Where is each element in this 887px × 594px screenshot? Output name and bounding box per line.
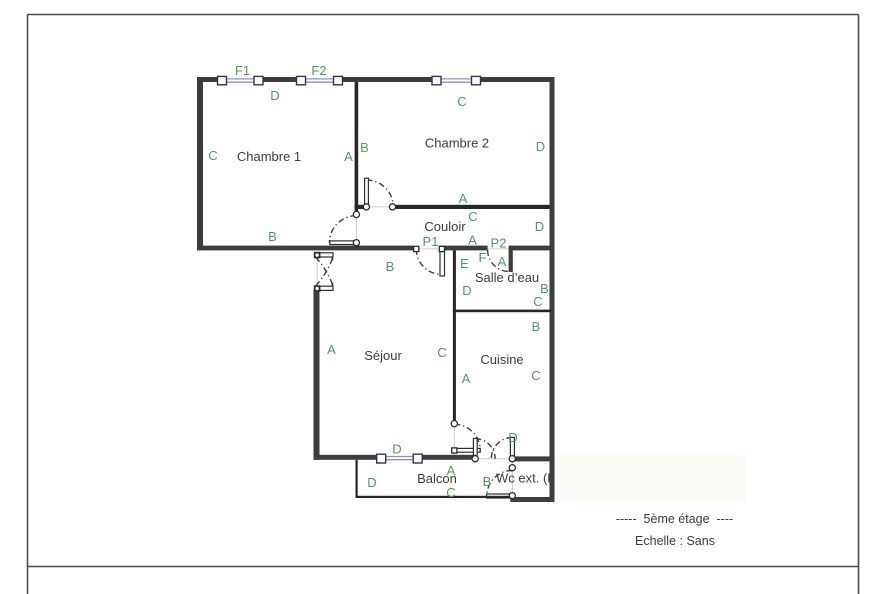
svg-text:Salle d’eau: Salle d’eau [475,270,539,285]
svg-text:C: C [533,294,542,309]
svg-text:P1: P1 [423,234,439,249]
svg-text:B: B [360,140,369,155]
svg-text:Chambre 2: Chambre 2 [425,136,489,151]
svg-text:A: A [498,254,507,269]
svg-text:C: C [468,209,477,224]
svg-text:C: C [208,148,217,163]
svg-text:A: A [327,342,336,357]
svg-text:A: A [459,191,468,206]
svg-text:Balcon: Balcon [417,471,457,486]
svg-text:B: B [386,259,395,274]
svg-text:D: D [536,139,545,154]
svg-text:Séjour: Séjour [364,348,402,363]
svg-text:C: C [457,94,466,109]
svg-text:A: A [468,233,477,248]
svg-text:F: F [479,250,487,265]
svg-text:C: C [531,368,540,383]
svg-text:Echelle : Sans: Echelle : Sans [635,534,715,548]
svg-text:Chambre 1: Chambre 1 [237,149,301,164]
svg-text:F2: F2 [311,63,326,78]
svg-text:A: A [344,149,353,164]
svg-text:D: D [508,430,517,445]
svg-text:B: B [532,319,541,334]
svg-text:P2: P2 [491,236,507,251]
svg-text:C: C [437,345,446,360]
svg-text:D: D [462,283,471,298]
svg-text:Cuisine: Cuisine [480,352,523,367]
svg-text:A: A [462,371,471,386]
svg-text:D: D [270,88,279,103]
svg-text:F1: F1 [235,63,250,78]
svg-text:E: E [460,256,469,271]
svg-text:B: B [483,474,492,489]
svg-text:----- 5ème étage ----: ----- 5ème étage ---- [616,512,733,526]
svg-text:C: C [446,485,455,500]
svg-text:B: B [268,229,277,244]
svg-text:D: D [535,219,544,234]
svg-text:Couloir: Couloir [424,219,466,234]
svg-text:D: D [367,475,376,490]
svg-text:D: D [392,442,401,457]
